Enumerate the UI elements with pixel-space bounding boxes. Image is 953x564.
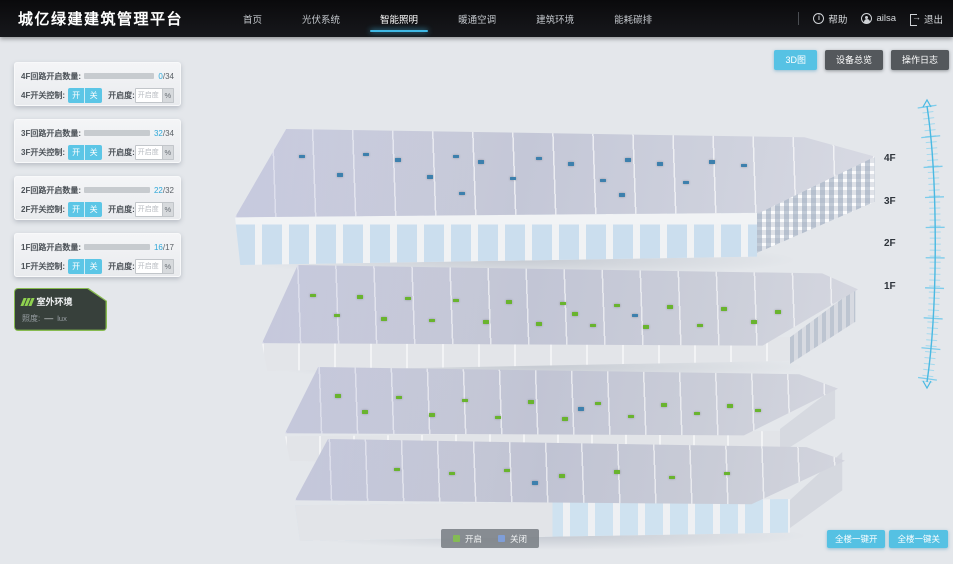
switch-on-button[interactable]: 开	[68, 202, 85, 217]
legend-on-label: 开启	[465, 533, 482, 545]
header-right: i 帮助 ailsa 退出	[798, 12, 943, 26]
help-button[interactable]: i 帮助	[813, 12, 847, 26]
user-icon	[861, 13, 872, 24]
dimming-input[interactable]	[135, 202, 163, 217]
circuit-count-label: 2F回路开启数量:	[21, 185, 81, 196]
switch-off-button[interactable]: 关	[85, 259, 102, 274]
light-dot	[683, 181, 689, 185]
percent-button[interactable]: %	[163, 259, 174, 274]
light-dot	[299, 155, 305, 159]
nav-hvac[interactable]: 暖通空调	[456, 6, 498, 32]
switch-control-label: 4F开关控制:	[21, 90, 65, 101]
top-header: 城亿绿建建筑管理平台 首页 光伏系统 智能照明 暖通空调 建筑环境 能耗碳排 i…	[0, 0, 953, 37]
view-3d-button[interactable]: 3D图	[774, 50, 817, 70]
light-dot	[334, 314, 340, 318]
floor-marker-1f[interactable]: 1F	[884, 281, 896, 292]
light-dot	[510, 177, 516, 181]
outdoor-env-panel: 室外环境 照度: — lux	[14, 288, 107, 331]
outdoor-stripes-icon	[22, 298, 33, 306]
light-dot	[724, 472, 730, 476]
light-dot	[619, 193, 625, 197]
illuminance-value: —	[44, 313, 53, 323]
dimming-input[interactable]	[135, 259, 163, 274]
light-dot	[462, 399, 468, 403]
switch-control-label: 2F开关控制:	[21, 204, 65, 215]
light-dot	[337, 173, 343, 177]
view-toolbar: 3D图 设备总览 操作日志	[774, 50, 949, 70]
circuit-count-value: 0/34	[158, 72, 174, 81]
main-nav: 首页 光伏系统 智能照明 暖通空调 建筑环境 能耗碳排	[241, 6, 654, 32]
device-overview-button[interactable]: 设备总览	[825, 50, 883, 70]
floor-marker-3f[interactable]: 3F	[884, 196, 896, 207]
whole-building-actions: 全楼一键开 全楼一键关	[827, 530, 948, 548]
logout-label: 退出	[924, 12, 943, 26]
user-name: ailsa	[876, 13, 896, 24]
light-dot	[709, 160, 715, 164]
building-3f-floor-plate[interactable]	[262, 265, 858, 349]
light-dot	[694, 412, 700, 416]
light-dot	[453, 299, 459, 303]
light-dot	[427, 175, 433, 179]
legend-on-swatch	[453, 535, 460, 542]
help-label: 帮助	[828, 12, 847, 26]
light-dot	[536, 322, 542, 326]
floor-scale-slider[interactable]	[905, 98, 949, 390]
dimming-input[interactable]	[135, 88, 163, 103]
operation-log-button[interactable]: 操作日志	[891, 50, 949, 70]
dimming-label: 开启度:	[108, 90, 135, 101]
nav-pv-system[interactable]: 光伏系统	[300, 6, 342, 32]
light-dot	[667, 305, 673, 309]
light-dot	[559, 474, 565, 478]
circuit-progress-bar	[84, 244, 150, 250]
light-dot	[600, 179, 606, 183]
circuit-progress-bar	[84, 73, 154, 79]
switch-on-button[interactable]: 开	[68, 259, 85, 274]
circuit-count-value: 16/17	[154, 243, 174, 252]
light-dot	[429, 319, 435, 323]
building-2f-floor-plate[interactable]	[285, 367, 838, 439]
light-dot	[572, 312, 578, 316]
light-dot	[459, 192, 465, 196]
dimming-label: 开启度:	[108, 261, 135, 272]
floor-panel-1f: 1F回路开启数量: 16/17 1F开关控制: 开 关 开启度: %	[14, 233, 181, 277]
light-dot	[405, 297, 411, 301]
light-dot	[751, 320, 757, 324]
light-dot	[536, 157, 542, 161]
circuit-progress-bar	[84, 187, 150, 193]
light-dot	[335, 394, 341, 398]
switch-control-label: 1F开关控制:	[21, 261, 65, 272]
outdoor-env-title: 室外环境	[37, 295, 73, 308]
nav-energy-carbon[interactable]: 能耗碳排	[612, 6, 654, 32]
legend-off-label: 关闭	[510, 533, 527, 545]
light-dot	[727, 404, 733, 408]
light-dot	[755, 409, 761, 413]
switch-on-button[interactable]: 开	[68, 88, 85, 103]
light-dot	[568, 162, 574, 166]
light-dot	[614, 304, 620, 308]
light-dot	[506, 300, 512, 304]
light-dot	[429, 413, 435, 417]
lighting-legend: 开启 关闭	[441, 529, 539, 548]
circuit-count-label: 4F回路开启数量:	[21, 71, 81, 82]
light-dot	[625, 158, 631, 162]
switch-on-button[interactable]: 开	[68, 145, 85, 160]
light-dot	[453, 155, 459, 159]
light-dot	[449, 472, 455, 476]
nav-smart-lighting[interactable]: 智能照明	[378, 6, 420, 32]
switch-control-label: 3F开关控制:	[21, 147, 65, 158]
circuit-count-label: 1F回路开启数量:	[21, 242, 81, 253]
logout-icon	[910, 14, 920, 24]
circuit-count-label: 3F回路开启数量:	[21, 128, 81, 139]
light-dot	[394, 468, 400, 472]
legend-on: 开启	[453, 533, 482, 545]
illuminance-label: 照度:	[22, 313, 40, 324]
app-title: 城亿绿建建筑管理平台	[18, 8, 183, 29]
user-menu[interactable]: ailsa	[861, 13, 896, 24]
dimming-input[interactable]	[135, 145, 163, 160]
switch-off-button[interactable]: 关	[85, 88, 102, 103]
circuit-count-value: 32/34	[154, 129, 174, 138]
building-4f-front-wall	[235, 213, 757, 265]
dimming-label: 开启度:	[108, 204, 135, 215]
light-dot	[669, 476, 675, 480]
all-floors-off-button[interactable]: 全楼一键关	[889, 530, 948, 548]
floor-marker-4f[interactable]: 4F	[884, 153, 896, 164]
light-dot	[578, 407, 584, 411]
light-dot	[357, 295, 363, 299]
percent-button[interactable]: %	[163, 88, 174, 103]
app-root: 城亿绿建建筑管理平台 首页 光伏系统 智能照明 暖通空调 建筑环境 能耗碳排 i…	[0, 0, 953, 564]
light-dot	[661, 403, 667, 407]
help-icon: i	[813, 13, 824, 24]
light-dot	[628, 415, 634, 419]
header-separator	[798, 12, 799, 25]
light-dot	[560, 302, 566, 306]
light-dot	[697, 324, 703, 328]
light-dot	[528, 400, 534, 404]
floor-panel-3f: 3F回路开启数量: 32/34 3F开关控制: 开 关 开启度: %	[14, 119, 181, 163]
building-1f-floor-plate[interactable]	[295, 439, 845, 507]
light-dot	[532, 481, 538, 485]
light-dot	[741, 164, 747, 168]
light-dot	[657, 162, 663, 166]
light-dot	[310, 294, 316, 298]
nav-building-env[interactable]: 建筑环境	[534, 6, 576, 32]
light-dot	[363, 153, 369, 157]
light-dot	[590, 324, 596, 328]
floor-control-stack: 4F回路开启数量: 0/34 4F开关控制: 开 关 开启度: % 3F回路开启…	[14, 62, 181, 290]
light-dot	[395, 158, 401, 162]
light-dot	[632, 314, 638, 318]
illuminance-unit: lux	[57, 314, 67, 323]
all-floors-on-button[interactable]: 全楼一键开	[827, 530, 886, 548]
logout-button[interactable]: 退出	[910, 12, 943, 26]
floor-marker-2f[interactable]: 2F	[884, 238, 896, 249]
switch-off-button[interactable]: 关	[85, 145, 102, 160]
percent-button[interactable]: %	[163, 145, 174, 160]
nav-home[interactable]: 首页	[241, 6, 264, 32]
light-dot	[595, 402, 601, 406]
light-dot	[721, 307, 727, 311]
floor-panel-4f: 4F回路开启数量: 0/34 4F开关控制: 开 关 开启度: %	[14, 62, 181, 106]
light-dot	[396, 396, 402, 400]
switch-off-button[interactable]: 关	[85, 202, 102, 217]
circuit-count-value: 22/32	[154, 186, 174, 195]
percent-button[interactable]: %	[163, 202, 174, 217]
light-dot	[478, 160, 484, 164]
circuit-progress-bar	[84, 130, 150, 136]
floor-panel-2f: 2F回路开启数量: 22/32 2F开关控制: 开 关 开启度: %	[14, 176, 181, 220]
light-dot	[381, 317, 387, 321]
legend-off: 关闭	[498, 533, 527, 545]
light-dot	[562, 417, 568, 421]
light-dot	[775, 310, 781, 314]
light-dot	[495, 416, 501, 420]
dimming-label: 开启度:	[108, 147, 135, 158]
light-dot	[483, 320, 489, 324]
light-dot	[504, 469, 510, 473]
light-dot	[643, 325, 649, 329]
light-dot	[614, 470, 620, 474]
legend-off-swatch	[498, 535, 505, 542]
light-dot	[362, 410, 368, 414]
